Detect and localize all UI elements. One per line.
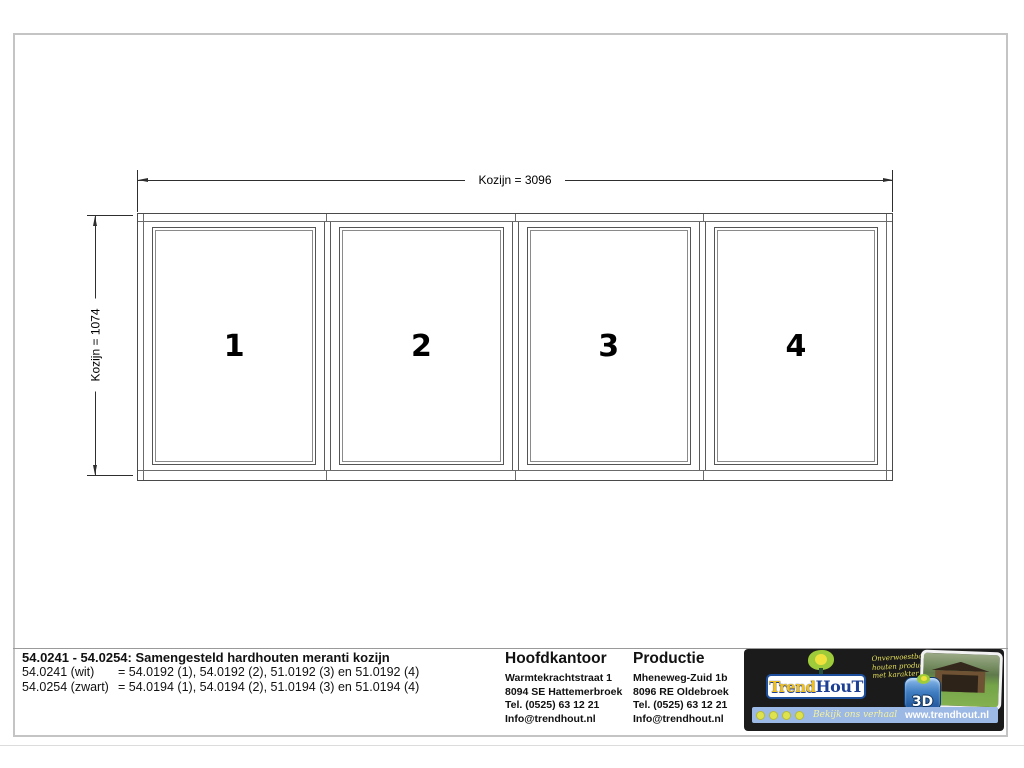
sash-outline: 2 [339,227,503,465]
3d-badge-icon: 3D [904,677,941,711]
frame-section-3: 3 [519,222,699,470]
glass-outline: 4 [717,230,875,462]
contact-productie: Productie Mheneweg-Zuid 1b 8096 RE Oldeb… [633,650,761,726]
cabin-roof [931,661,989,672]
sash-outline: 4 [714,227,878,465]
frame-section-1: 1 [144,222,324,470]
frame-sections-row: 1 2 3 4 [144,222,886,470]
section-number: 4 [785,329,806,364]
frame-section-2: 2 [331,222,511,470]
contact-heading: Productie [633,650,761,668]
glass-outline: 2 [342,230,500,462]
contact-street: Mheneweg-Zuid 1b [633,672,761,686]
variant-value: = 54.0194 (1), 54.0194 (2), 51.0194 (3) … [118,680,419,695]
title-block-description: 54.0241 - 54.0254: Samengesteld hardhout… [22,650,492,695]
glass-outline: 1 [155,230,313,462]
contact-phone: Tel. (0525) 63 12 21 [505,699,633,713]
mullion [699,222,706,470]
contact-hoofdkantoor: Hoofdkantoor Warmtekrachtstraat 1 8094 S… [505,650,633,726]
brand-trend-text: Trend [769,678,815,696]
social-icon [782,711,791,720]
contact-street: Warmtekrachtstraat 1 [505,672,633,686]
variant-value: = 54.0192 (1), 54.0192 (2), 51.0192 (3) … [118,665,419,680]
section-number: 1 [224,329,245,364]
window-frame-drawing: 1 2 3 4 [137,213,893,481]
glass-outline: 3 [530,230,688,462]
trendhout-logo-block: TrendHouT Onverwoestbare houten producte… [744,649,1004,731]
badge-tree-swirl [921,676,927,681]
frame-section-4: 4 [706,222,886,470]
width-dimension-label: Kozijn = 3096 [465,173,565,187]
contact-heading: Hoofdkantoor [505,650,633,668]
mullion [512,222,519,470]
logo-footer-strip: Bekijk ons verhaal www.trendhout.nl [752,707,998,723]
variant-row: 54.0241 (wit) = 54.0192 (1), 54.0192 (2)… [22,665,492,680]
extension-line-left [137,170,138,212]
social-icon [756,711,765,720]
section-number: 2 [411,329,432,364]
contact-phone: Tel. (0525) 63 12 21 [633,699,761,713]
social-icon [769,711,778,720]
arrowhead-right-icon [883,178,893,182]
mullion [324,222,331,470]
cabin-shape [935,670,986,694]
extension-line-right [892,170,893,212]
tree-swirl [815,654,827,665]
brand-hout-text: HouT [816,677,863,696]
contact-email: Info@trendhout.nl [505,713,633,727]
arrowhead-left-icon [138,178,148,182]
contact-city: 8094 SE Hattemerbroek [505,686,633,700]
variant-label: 54.0254 (zwart) [22,680,118,695]
sash-outline: 1 [152,227,316,465]
contact-email: Info@trendhout.nl [633,713,761,727]
footer-tagline: Bekijk ons verhaal [813,710,897,720]
cabin-opening [942,674,979,692]
section-number: 3 [598,329,619,364]
website-text: www.trendhout.nl [905,710,989,721]
social-icon [795,711,804,720]
drawing-title: 54.0241 - 54.0254: Samengesteld hardhout… [22,650,492,665]
contact-city: 8096 RE Oldebroek [633,686,761,700]
trendhout-wordmark: TrendHouT [766,674,866,699]
arrowhead-up-icon [93,216,97,226]
page-edge-line [0,745,1024,746]
variant-row: 54.0254 (zwart) = 54.0194 (1), 54.0194 (… [22,680,492,695]
arrowhead-down-icon [93,465,97,475]
extension-line-bottom [87,475,133,476]
frame-jamb-line-right [886,214,887,480]
sash-outline: 3 [527,227,691,465]
height-dimension-label: Kozijn = 1074 [89,299,103,392]
tree-icon [806,650,836,676]
variant-label: 54.0241 (wit) [22,665,118,680]
